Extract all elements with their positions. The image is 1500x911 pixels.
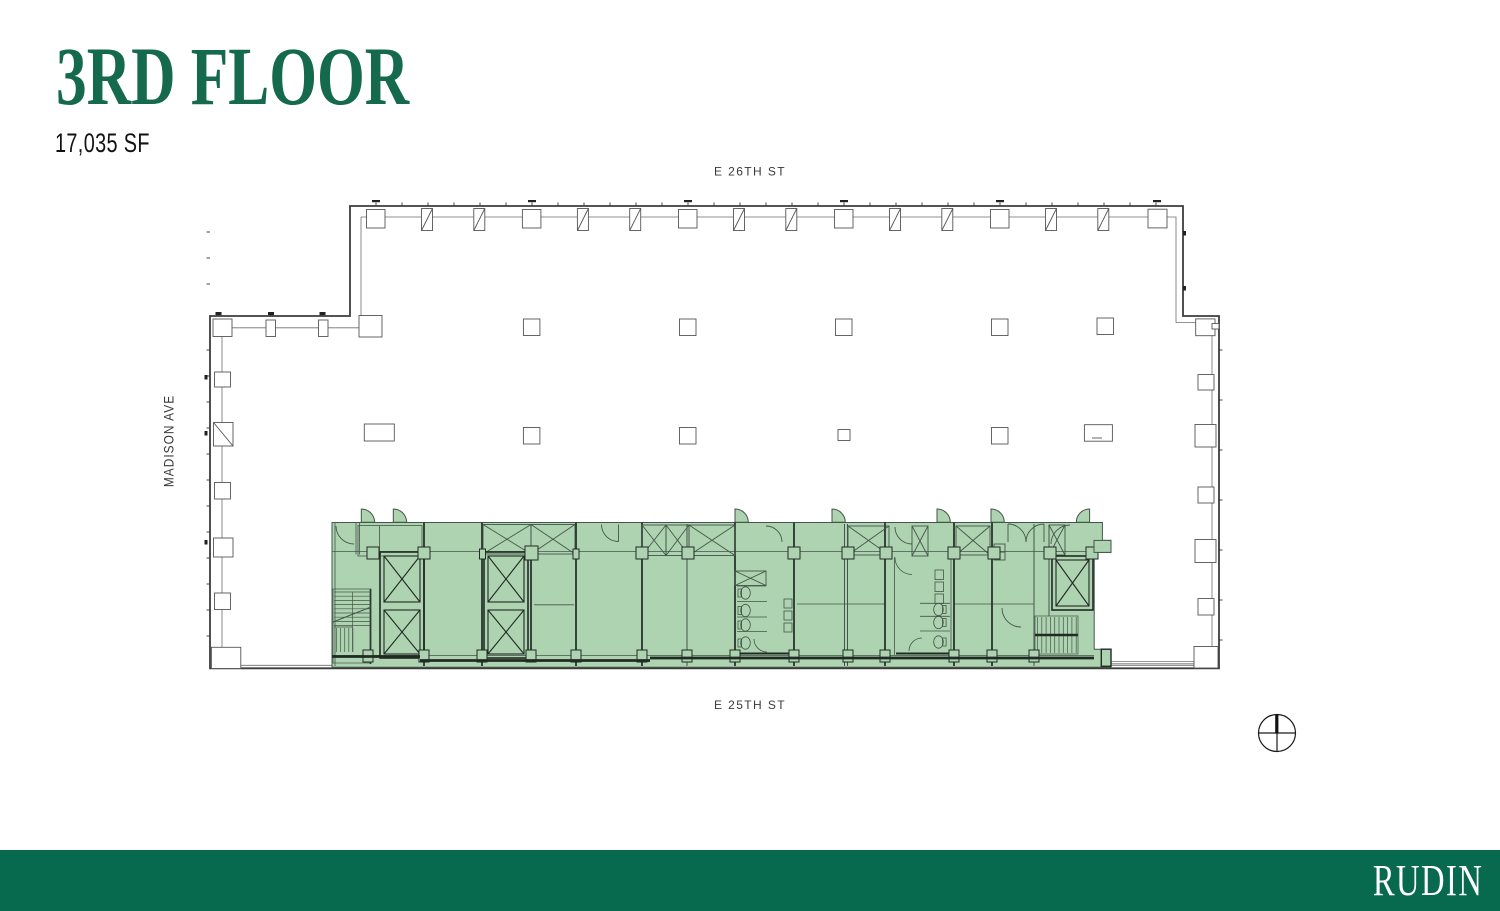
svg-text:E 26TH ST: E 26TH ST [714,165,786,179]
svg-text:E 25TH ST: E 25TH ST [714,698,786,712]
svg-text:MADISON AVE: MADISON AVE [161,395,177,487]
